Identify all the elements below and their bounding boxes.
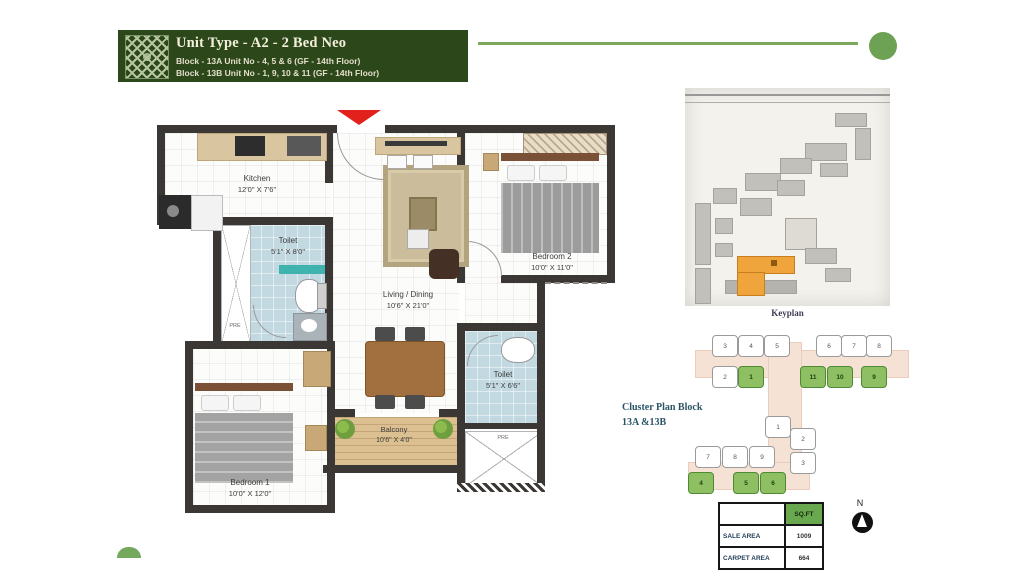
sale-area-value: 1009 xyxy=(785,525,823,547)
block-13b-info: Block - 13B Unit No - 1, 9, 10 & 11 (GF … xyxy=(176,68,379,78)
wall xyxy=(157,125,337,133)
wall xyxy=(385,125,615,133)
header-green-dot xyxy=(869,32,897,60)
kitchen-sink-counter xyxy=(287,136,321,156)
sale-area-label: SALE AREA xyxy=(719,525,785,547)
toilet2-label: Toilet 5'1" X 6'6" xyxy=(467,369,539,391)
keyplan-building xyxy=(777,180,805,196)
keyplan-open-area xyxy=(785,218,817,250)
room-name: Kitchen xyxy=(197,173,317,185)
shaft1-label: PRE xyxy=(221,323,249,329)
unit-block: 1 xyxy=(765,416,791,438)
room-dims: 5'1" X 6'6" xyxy=(467,381,539,392)
ornament-pattern-icon xyxy=(125,35,169,79)
area-table-corner-cell xyxy=(719,503,785,525)
keyplan-building xyxy=(820,163,848,177)
floor-plan: Kitchen 12'0" X 7'6" Toilet 5'1" X 8'0" … xyxy=(157,125,615,525)
unit-type-title: Unit Type - A2 - 2 Bed Neo xyxy=(176,35,346,52)
footer-green-dot xyxy=(117,547,141,558)
room-name: Toilet xyxy=(251,235,325,247)
keyplan-building xyxy=(825,268,851,282)
cluster-title-line2: 13A &13B xyxy=(622,415,702,430)
wall xyxy=(465,423,537,429)
keyplan-building xyxy=(695,268,711,304)
wall xyxy=(333,409,355,417)
keyplan-building xyxy=(835,113,867,127)
tv-unit xyxy=(375,137,461,155)
carpet-area-label: CARPET AREA xyxy=(719,547,785,569)
entrance-arrow-icon xyxy=(337,110,381,125)
pillow xyxy=(507,165,535,181)
unit-block: 6 xyxy=(816,335,842,357)
sqft-header-cell: SQ.FT xyxy=(785,503,823,525)
table-row: CARPET AREA 664 xyxy=(719,547,823,569)
wall-hatched xyxy=(457,483,545,492)
nightstand xyxy=(483,153,499,171)
room-name: Living / Dining xyxy=(353,289,463,301)
unit-block-highlighted: 9 xyxy=(861,366,887,388)
wall xyxy=(213,217,221,349)
keyplan-map xyxy=(685,88,890,306)
dining-table xyxy=(365,341,445,397)
nightstand xyxy=(305,425,327,451)
wall xyxy=(457,323,465,489)
keyplan-building xyxy=(715,243,733,257)
open-edge-dashed xyxy=(545,282,607,284)
dining-chair xyxy=(375,395,395,409)
unit-type-banner: Unit Type - A2 - 2 Bed Neo Block - 13A U… xyxy=(118,30,468,82)
room-name: Toilet xyxy=(467,369,539,381)
cluster-plan: 3 4 5 6 7 8 2 1 11 10 9 1 2 3 7 8 9 4 5 … xyxy=(620,330,915,508)
unit-block-highlighted: 4 xyxy=(688,472,714,494)
keyplan-road xyxy=(685,94,890,96)
bedroom2-headboard xyxy=(501,153,599,161)
room-dims: 10'0" X 12'0" xyxy=(190,489,310,500)
kitchen-hob xyxy=(235,136,265,156)
compass-needle xyxy=(857,514,867,527)
bedroom1-headboard xyxy=(195,383,293,391)
unit-block: 7 xyxy=(841,335,867,357)
unit-block: 8 xyxy=(866,335,892,357)
cluster-plan-title: Cluster Plan Block 13A &13B xyxy=(622,400,702,430)
bedroom1-bed xyxy=(195,413,293,483)
unit-block: 4 xyxy=(738,335,764,357)
north-label: N xyxy=(845,498,875,508)
keyplan-building xyxy=(740,198,772,216)
cluster-title-line1: Cluster Plan Block xyxy=(622,400,702,415)
block-13a-info: Block - 13A Unit No - 4, 5 & 6 (GF - 14t… xyxy=(176,56,360,66)
unit-block: 2 xyxy=(790,428,816,450)
room-name: Bedroom 2 xyxy=(497,251,607,263)
keyplan-building xyxy=(695,203,711,265)
room-dims: 10'6" X 21'0" xyxy=(353,301,463,312)
dining-chair xyxy=(375,327,395,341)
wall xyxy=(457,323,545,331)
room-dims: 12'0" X 7'6" xyxy=(197,185,317,196)
unit-block: 3 xyxy=(790,452,816,474)
dining-chair xyxy=(405,327,425,341)
unit-block-highlighted: 5 xyxy=(733,472,759,494)
carpet-area-value: 664 xyxy=(785,547,823,569)
area-table: SQ.FT SALE AREA 1009 CARPET AREA 664 xyxy=(718,502,824,570)
living-label: Living / Dining 10'6" X 21'0" xyxy=(353,289,463,311)
kitchen-sink-unit xyxy=(191,195,223,231)
keyplan-road xyxy=(685,102,890,103)
pillow xyxy=(233,395,261,411)
keyplan-highlight-dot xyxy=(771,260,777,266)
keyplan-building xyxy=(805,248,837,264)
wall xyxy=(185,341,335,349)
unit-block: 2 xyxy=(712,366,738,388)
keyplan-highlight-block xyxy=(737,272,765,296)
balcony-label: Balcony 10'6" X 4'0" xyxy=(349,425,439,446)
room-name: Bedroom 1 xyxy=(190,477,310,489)
keyplan-building xyxy=(780,158,812,174)
table-row: SQ.FT xyxy=(719,503,823,525)
balcony-railing xyxy=(323,465,465,473)
keyplan-building xyxy=(855,128,871,160)
unit-block-highlighted: 1 xyxy=(738,366,764,388)
floorplan-brochure-page: Unit Type - A2 - 2 Bed Neo Block - 13A U… xyxy=(0,0,1024,576)
bedroom2-label: Bedroom 2 10'0" X 11'0" xyxy=(497,251,607,273)
kitchen-label: Kitchen 12'0" X 7'6" xyxy=(197,173,317,195)
bedroom1-wardrobe xyxy=(303,351,331,387)
appliance-knob xyxy=(167,205,179,217)
keyplan-building xyxy=(713,188,737,204)
unit-block: 3 xyxy=(712,335,738,357)
toilet1-shelf xyxy=(279,265,325,274)
toilet1-label: Toilet 5'1" X 8'0" xyxy=(251,235,325,257)
toilet1-basin xyxy=(301,319,317,332)
rug-medallion xyxy=(409,197,437,231)
pillow xyxy=(201,395,229,411)
bedroom1-label: Bedroom 1 10'0" X 12'0" xyxy=(190,477,310,499)
unit-block: 8 xyxy=(722,446,748,468)
wall xyxy=(607,125,615,283)
unit-block-highlighted: 11 xyxy=(800,366,826,388)
bedroom2-wardrobe xyxy=(523,133,607,155)
header-rule-line xyxy=(478,42,858,45)
table-row: SALE AREA 1009 xyxy=(719,525,823,547)
keyplan-building xyxy=(715,218,733,234)
tv xyxy=(385,141,447,146)
room-dims: 10'0" X 11'0" xyxy=(497,263,607,274)
toilet1-cistern xyxy=(317,283,327,309)
shaft2-label: PRE xyxy=(465,435,541,441)
room-dims: 10'6" X 4'0" xyxy=(349,436,439,446)
armchair xyxy=(429,249,459,279)
unit-block-highlighted: 6 xyxy=(760,472,786,494)
room-name: Balcony xyxy=(349,425,439,436)
side-chair xyxy=(413,155,433,169)
pillow xyxy=(539,165,567,181)
dining-chair xyxy=(405,395,425,409)
unit-block: 5 xyxy=(764,335,790,357)
unit-block-highlighted: 10 xyxy=(827,366,853,388)
wall xyxy=(185,505,335,513)
toilet2-wc xyxy=(501,337,535,363)
keyplan-caption: Keyplan xyxy=(685,308,890,318)
unit-block: 9 xyxy=(749,446,775,468)
room-dims: 5'1" X 8'0" xyxy=(251,247,325,258)
side-table xyxy=(407,229,429,249)
unit-block: 7 xyxy=(695,446,721,468)
side-chair xyxy=(387,155,407,169)
bedroom2-bed xyxy=(501,183,599,253)
keyplan-building xyxy=(745,173,781,191)
